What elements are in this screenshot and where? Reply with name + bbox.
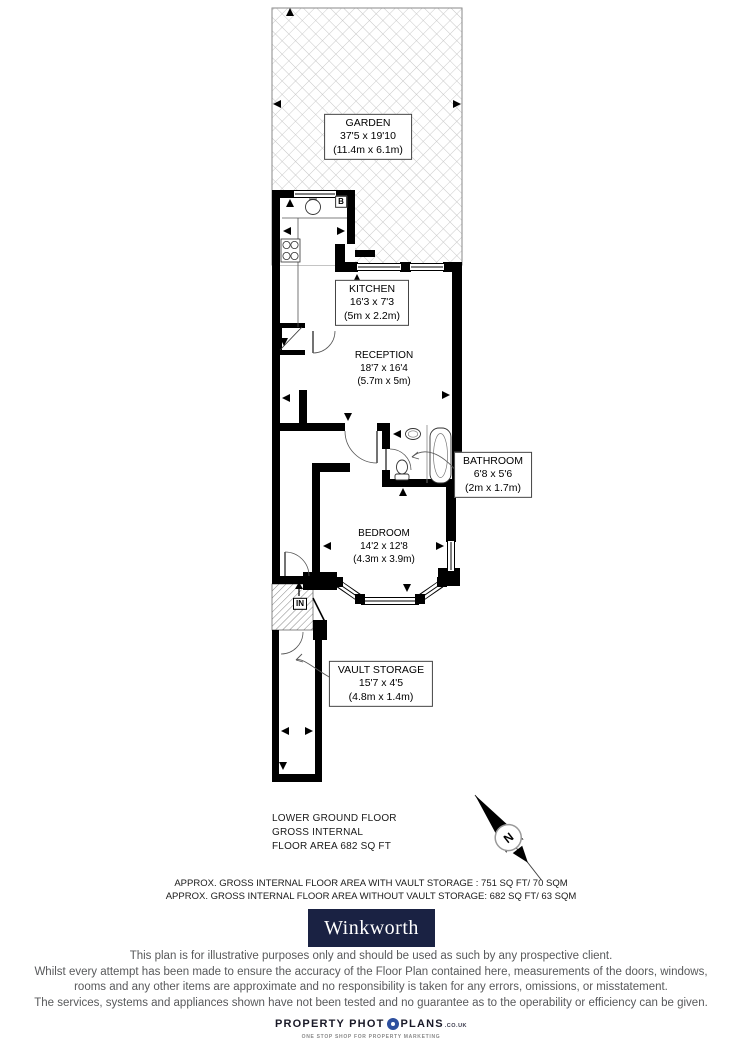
room-name: RECEPTION	[355, 350, 413, 363]
room-size-m: (5.7m x 5m)	[355, 375, 413, 388]
disclaimer-line1: This plan is for illustrative purposes o…	[0, 949, 742, 965]
toilet-icon	[395, 460, 409, 480]
room-size-ft: 37'5 x 19'10	[333, 130, 403, 143]
bedroom-label: BEDROOM 14'2 x 12'8 (4.3m x 3.9m)	[353, 528, 415, 566]
hob-icon	[281, 239, 300, 262]
winkworth-logo-text: Winkworth	[324, 917, 419, 940]
vault-storage-label: VAULT STORAGE 15'7 x 4'5 (4.8m x 1.4m)	[329, 661, 433, 707]
room-name: BEDROOM	[353, 528, 415, 541]
area-notes: APPROX. GROSS INTERNAL FLOOR AREA WITH V…	[0, 877, 742, 903]
floor-plan-page: N GARDEN 37'5 x 19'10 (11.4m x 6.1m) KIT…	[0, 0, 742, 1050]
room-size-m: (4.8m x 1.4m)	[338, 691, 424, 704]
sink-icon	[306, 200, 321, 215]
disclaimer-line4: The services, systems and appliances sho…	[0, 996, 742, 1012]
room-size-m: (5m x 2.2m)	[344, 310, 400, 323]
garden-label: GARDEN 37'5 x 19'10 (11.4m x 6.1m)	[324, 114, 412, 160]
room-size-ft: 6'8 x 5'6	[463, 468, 523, 481]
compass-north-icon: N	[465, 787, 552, 888]
camera-aperture-icon	[387, 1018, 399, 1030]
room-size-m: (2m x 1.7m)	[463, 482, 523, 495]
room-name: KITCHEN	[344, 283, 400, 296]
bathroom-label: BATHROOM 6'8 x 5'6 (2m x 1.7m)	[454, 452, 532, 498]
plan-provider-tagline: ONE STOP SHOP FOR PROPERTY MARKETING	[0, 1034, 742, 1040]
disclaimer: This plan is for illustrative purposes o…	[0, 949, 742, 1011]
room-size-ft: 15'7 x 4'5	[338, 677, 424, 690]
disclaimer-line3: rooms and any other items are approximat…	[0, 980, 742, 996]
room-size-m: (4.3m x 3.9m)	[353, 553, 415, 566]
room-size-ft: 18'7 x 16'4	[355, 363, 413, 376]
kitchen-label: KITCHEN 16'3 x 7'3 (5m x 2.2m)	[335, 280, 409, 326]
floor-summary-line2: GROSS INTERNAL	[272, 826, 397, 840]
disclaimer-line2: Whilst every attempt has been made to en…	[0, 965, 742, 981]
bath-icon	[430, 428, 451, 483]
plan-provider-suffix: PLANS	[401, 1018, 444, 1030]
room-size-ft: 14'2 x 12'8	[353, 541, 415, 554]
plan-provider-wordmark: PROPERTY PHOT PLANS .CO.UK	[275, 1018, 467, 1030]
plan-provider-domain: .CO.UK	[445, 1023, 467, 1029]
winkworth-logo: Winkworth	[308, 909, 435, 947]
plan-provider-prefix: PROPERTY PHOT	[275, 1018, 385, 1030]
area-note-without-vault: APPROX. GROSS INTERNAL FLOOR AREA WITHOU…	[0, 890, 742, 903]
entrance-in-label: IN	[293, 598, 307, 610]
floor-summary: LOWER GROUND FLOOR GROSS INTERNAL FLOOR …	[272, 812, 397, 854]
floor-summary-line3: FLOOR AREA 682 SQ FT	[272, 840, 397, 854]
room-name: GARDEN	[333, 117, 403, 130]
room-size-ft: 16'3 x 7'3	[344, 296, 400, 309]
room-size-m: (11.4m x 6.1m)	[333, 144, 403, 157]
boiler-label: B	[335, 196, 347, 208]
basin-icon	[406, 429, 421, 440]
reception-label: RECEPTION 18'7 x 16'4 (5.7m x 5m)	[355, 350, 413, 388]
area-note-with-vault: APPROX. GROSS INTERNAL FLOOR AREA WITH V…	[0, 877, 742, 890]
plan-provider-logo: PROPERTY PHOT PLANS .CO.UK ONE STOP SHOP…	[0, 1014, 742, 1040]
floor-summary-line1: LOWER GROUND FLOOR	[272, 812, 397, 826]
room-name: VAULT STORAGE	[338, 664, 424, 677]
room-name: BATHROOM	[463, 455, 523, 468]
